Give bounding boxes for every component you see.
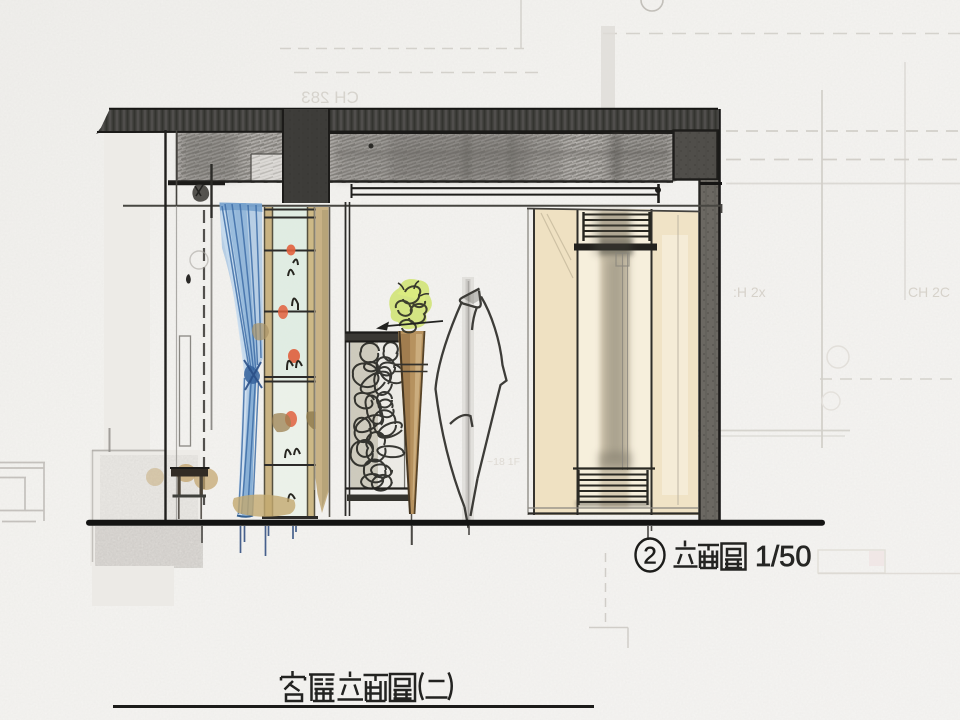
svg-text::H 2x: :H 2x: [733, 284, 766, 300]
svg-text:CH 283: CH 283: [301, 88, 359, 107]
svg-text:1/50: 1/50: [755, 541, 811, 573]
svg-text:CH 2C: CH 2C: [908, 284, 950, 300]
svg-text:2: 2: [643, 543, 656, 570]
svg-text:~18 1F: ~18 1F: [487, 456, 520, 468]
